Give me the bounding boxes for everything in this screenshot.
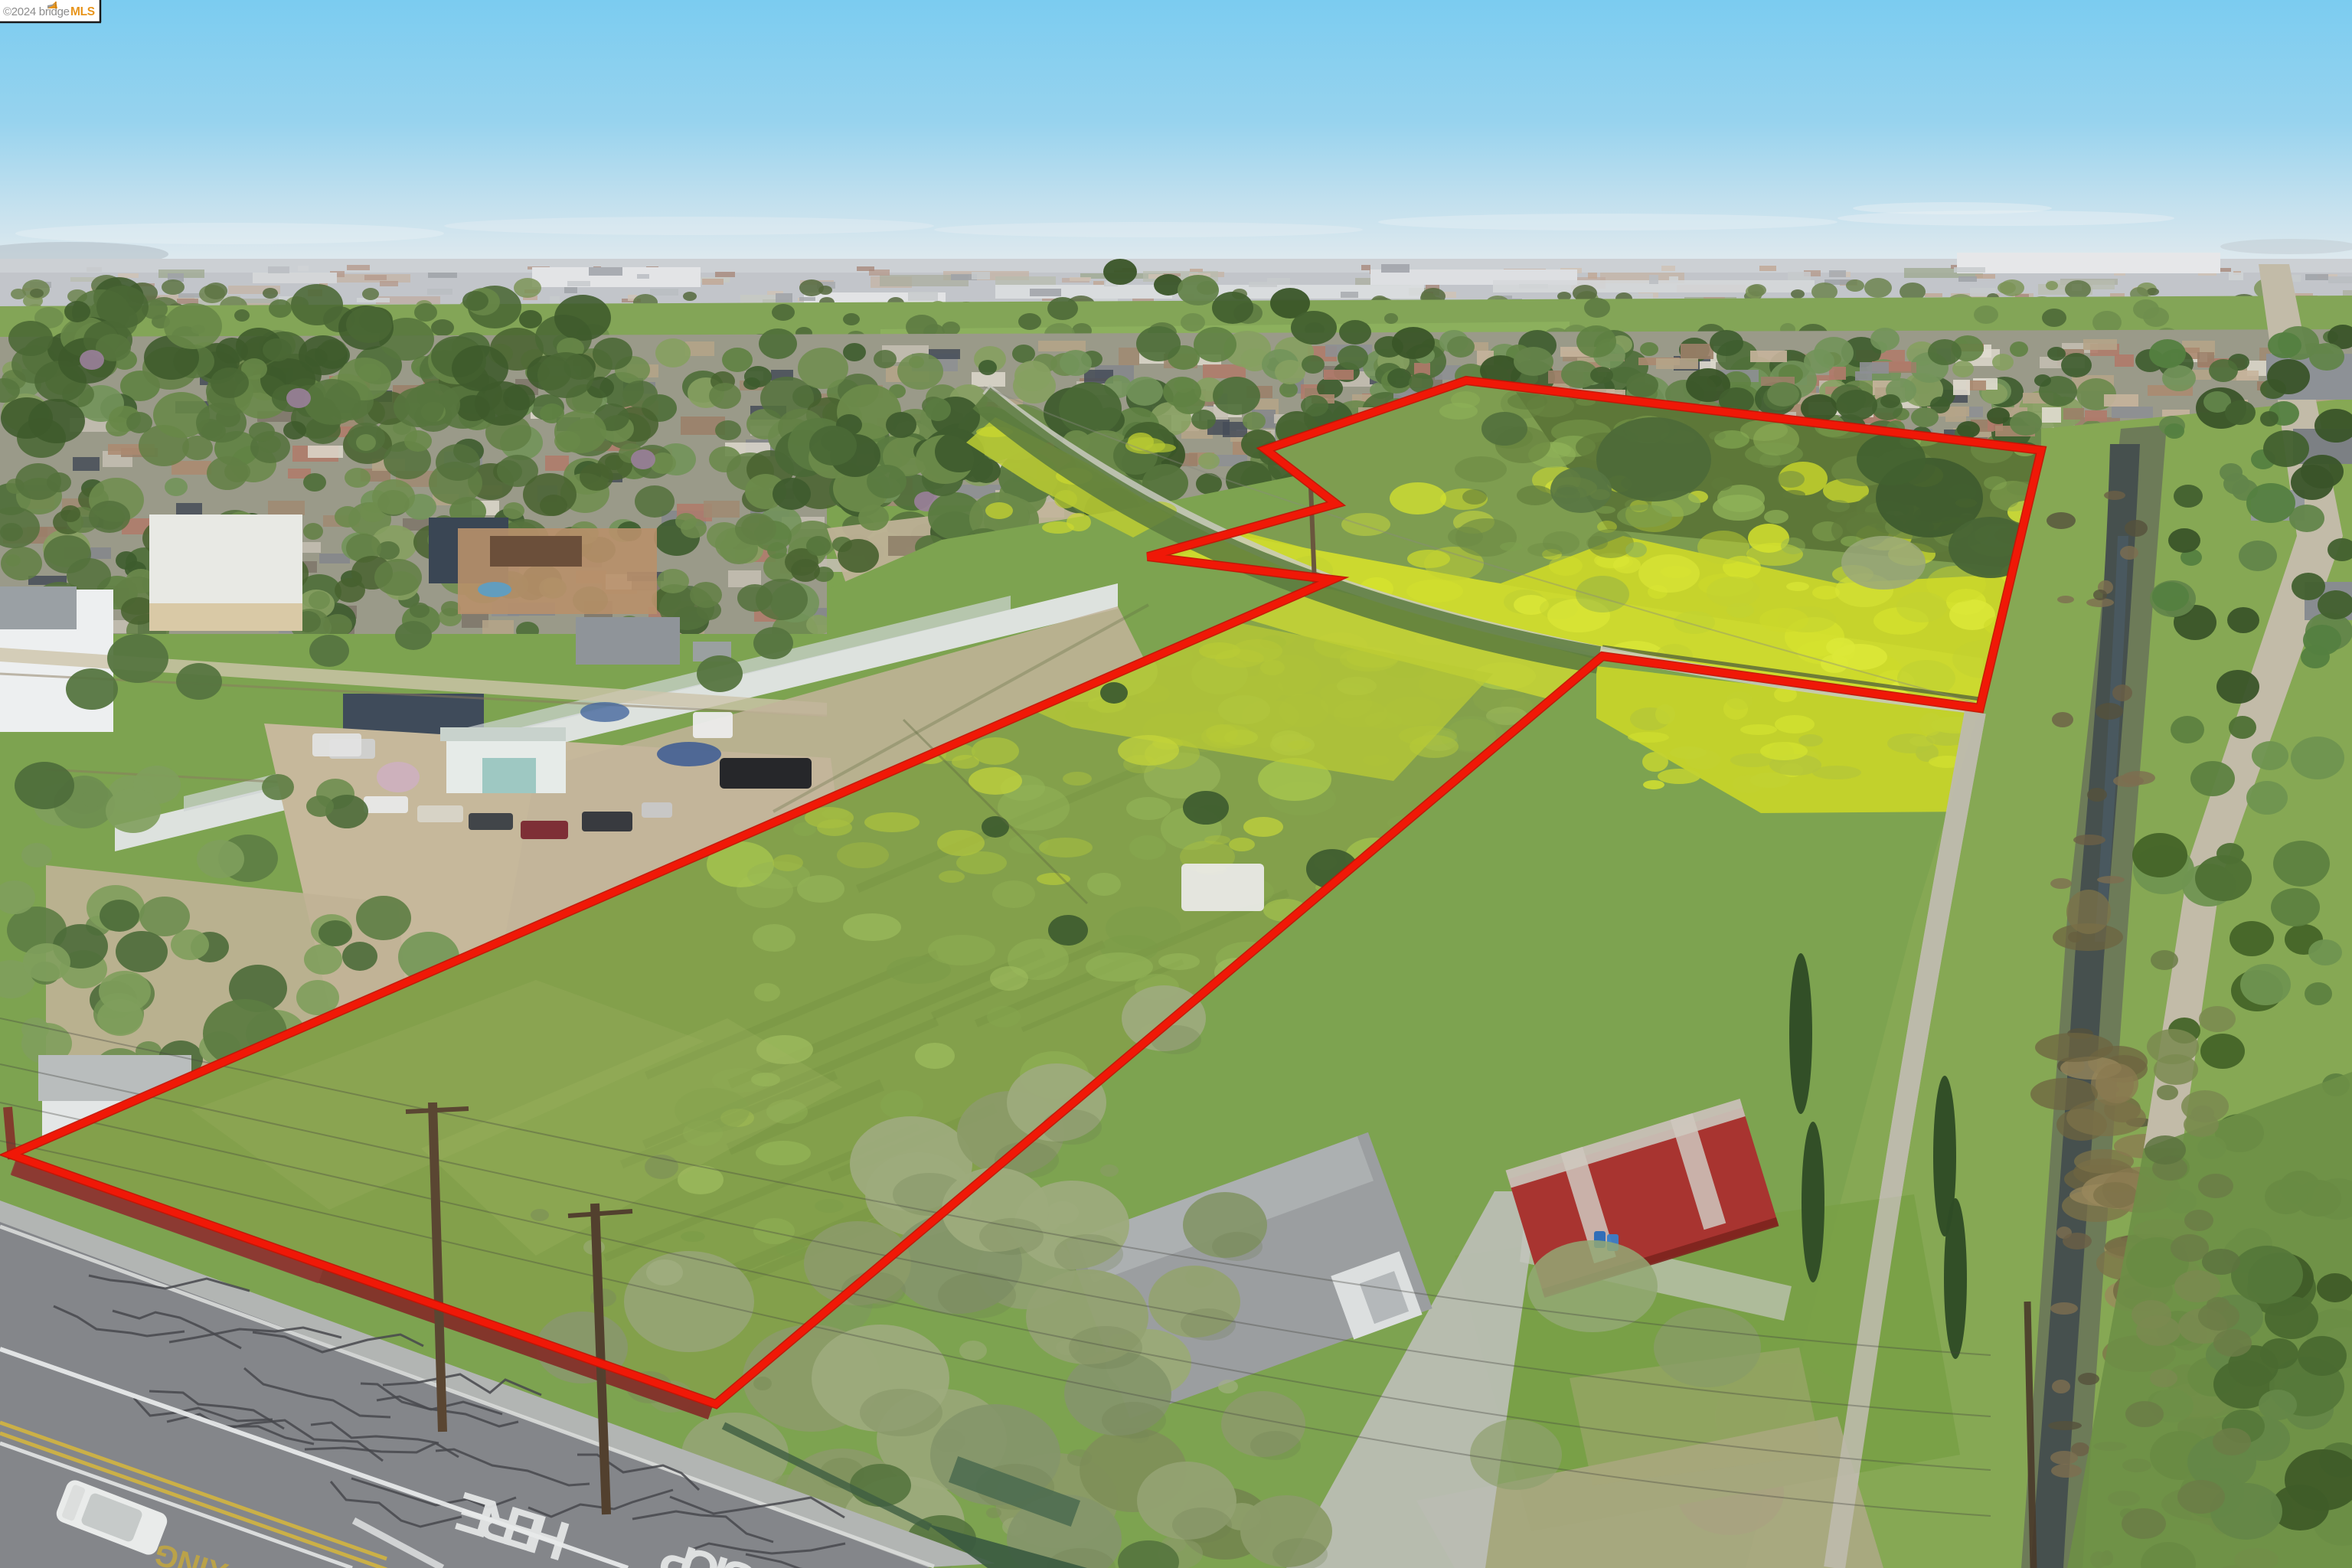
svg-text:©2024 bridge: ©2024 bridge <box>3 5 70 18</box>
svg-text:MLS: MLS <box>70 5 95 18</box>
